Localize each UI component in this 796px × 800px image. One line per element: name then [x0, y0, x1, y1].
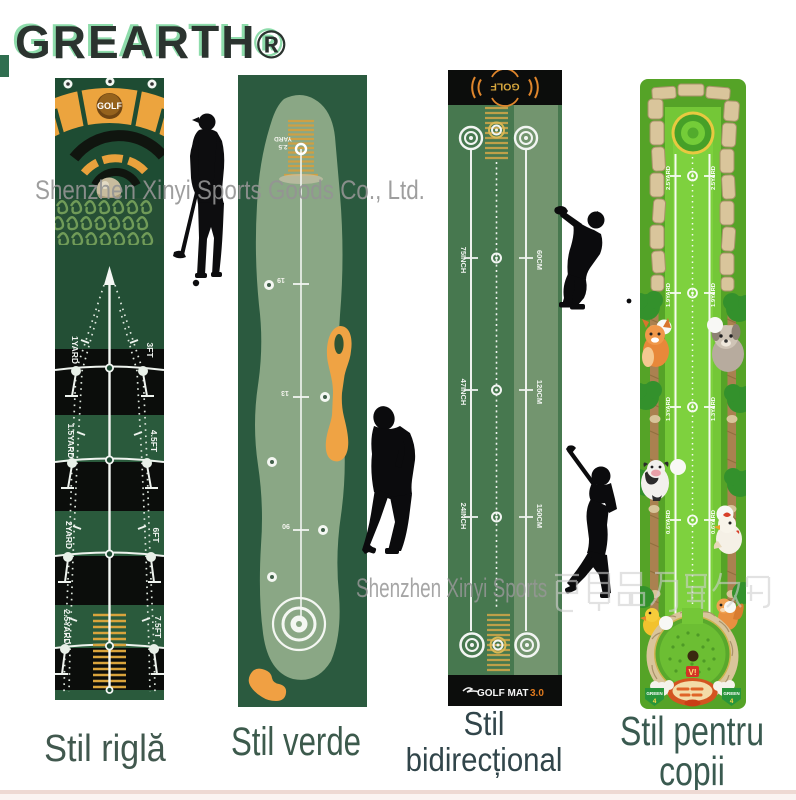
svg-text:24INCH: 24INCH	[459, 503, 468, 530]
svg-text:4: 4	[730, 698, 734, 705]
svg-text:GOLF MAT: GOLF MAT	[477, 688, 528, 699]
svg-text:GREEN: GREEN	[646, 691, 663, 696]
svg-text:4: 4	[653, 698, 657, 705]
svg-text:1.9YARD: 1.9YARD	[666, 283, 672, 307]
svg-text:120CM: 120CM	[535, 380, 544, 404]
svg-text:4.5FT: 4.5FT	[149, 430, 159, 453]
svg-text:75INCH: 75INCH	[459, 247, 468, 274]
svg-text:1.5YARD: 1.5YARD	[66, 423, 76, 458]
svg-text:1YARD: 1YARD	[70, 336, 80, 364]
svg-text:3.0: 3.0	[530, 688, 544, 699]
svg-text:13: 13	[281, 389, 289, 396]
svg-text:0.6YARD: 0.6YARD	[666, 510, 672, 534]
svg-text:GOLF: GOLF	[97, 101, 122, 111]
svg-text:150CM: 150CM	[535, 504, 544, 528]
svg-text:GREEN: GREEN	[723, 691, 740, 696]
svg-text:47INCH: 47INCH	[459, 379, 468, 406]
svg-text:GOLF: GOLF	[490, 81, 520, 93]
svg-text:1.3YARD: 1.3YARD	[666, 397, 672, 421]
svg-text:2.5YARD: 2.5YARD	[711, 166, 717, 190]
svg-text:2.5YARD: 2.5YARD	[62, 609, 72, 644]
svg-text:90: 90	[282, 522, 290, 529]
svg-text:60CM: 60CM	[535, 250, 544, 270]
svg-text:6FT: 6FT	[151, 527, 161, 543]
svg-text:2YARD: 2YARD	[64, 521, 74, 549]
svg-text:1.3YARD: 1.3YARD	[711, 397, 717, 421]
svg-text:3FT: 3FT	[145, 342, 155, 358]
svg-text:7.5FT: 7.5FT	[153, 616, 163, 639]
svg-text:V!: V!	[689, 668, 697, 677]
svg-text:0.6YARD: 0.6YARD	[711, 510, 717, 534]
svg-text:19: 19	[277, 276, 285, 283]
svg-text:2.5YARD: 2.5YARD	[666, 166, 672, 190]
svg-text:1.9YARD: 1.9YARD	[711, 283, 717, 307]
